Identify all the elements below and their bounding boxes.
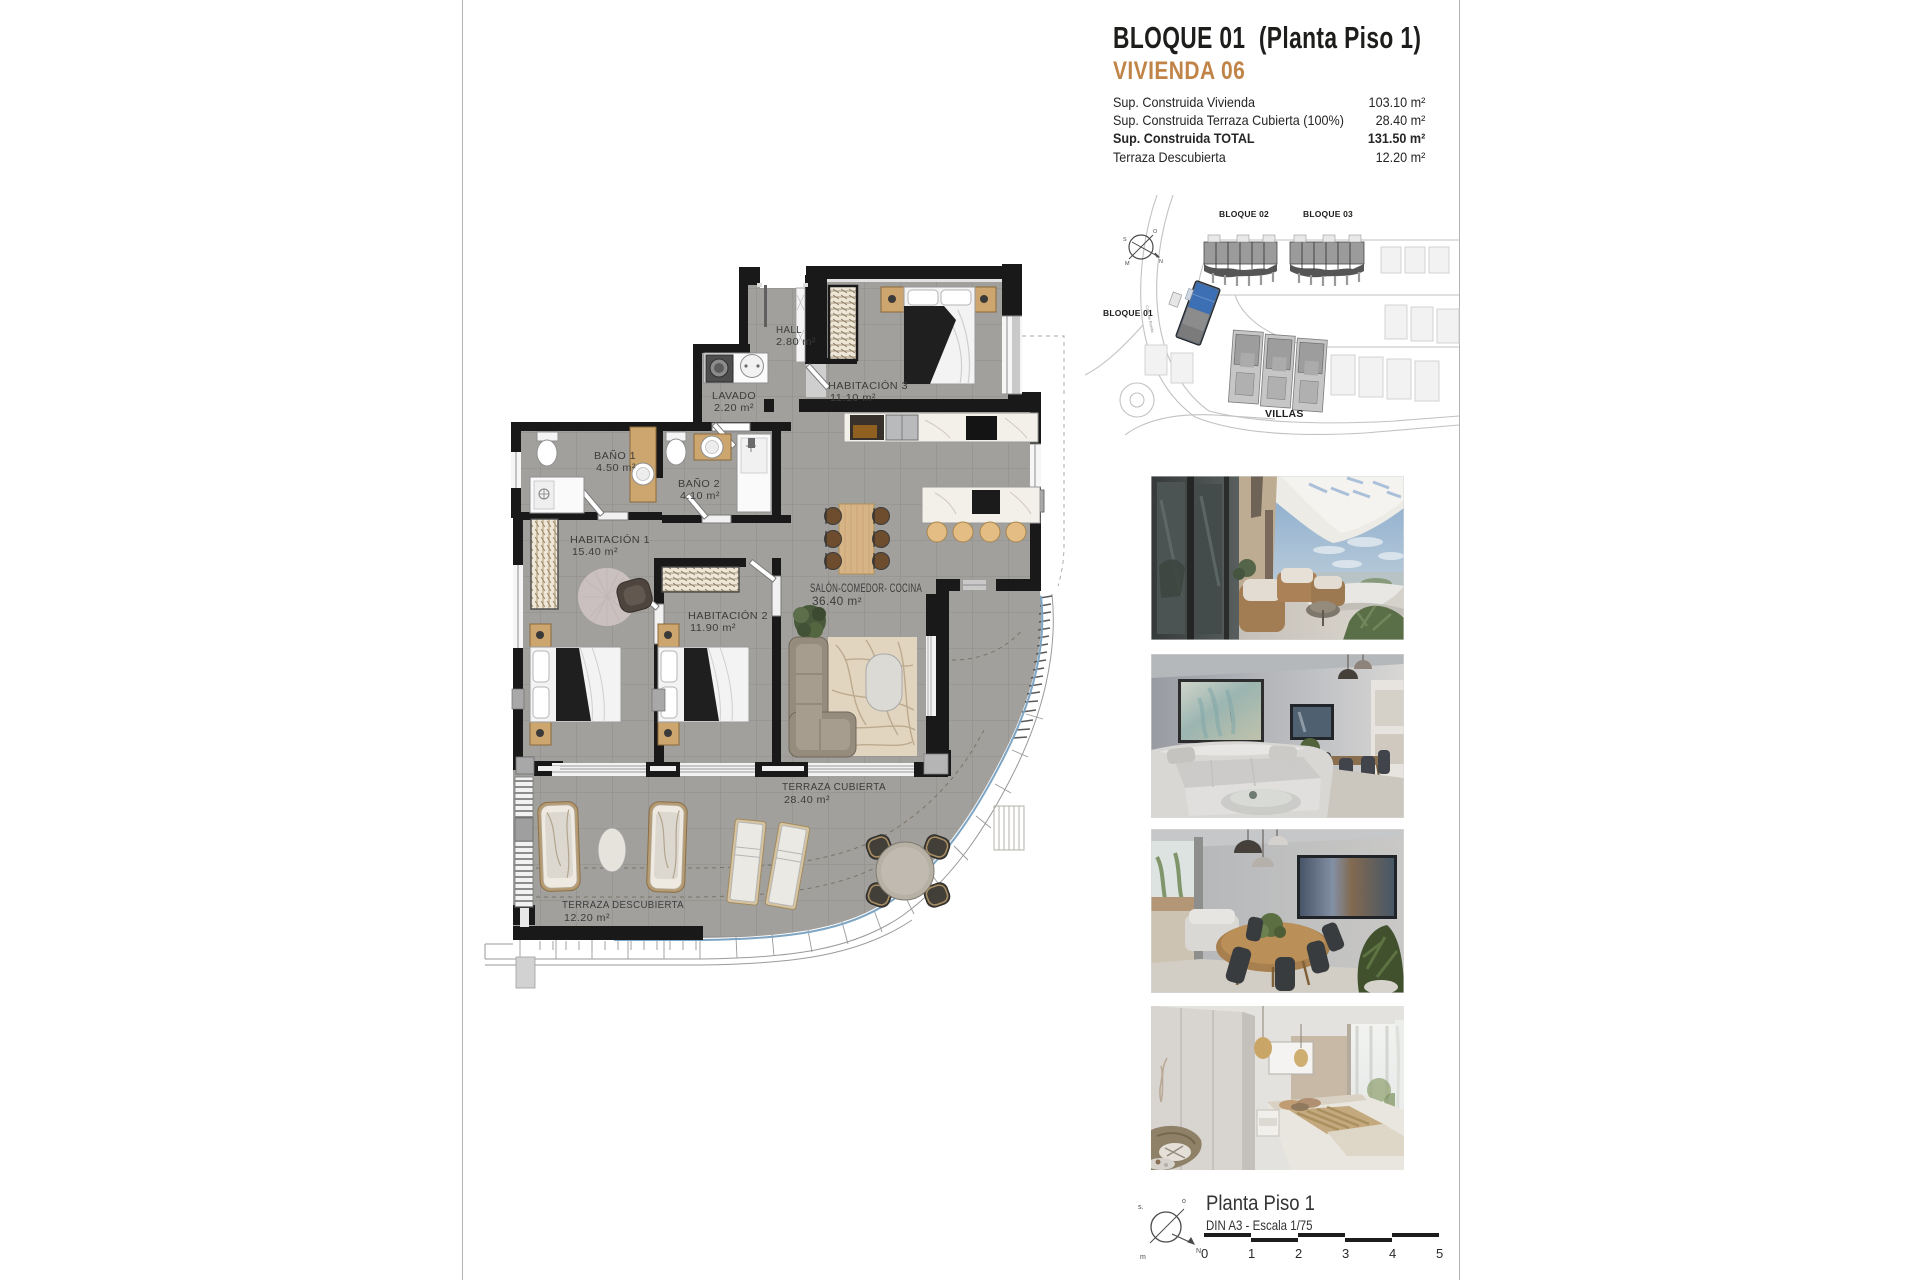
svg-text:BAÑO 2: BAÑO 2 [678, 477, 720, 490]
svg-text:4.10 m²: 4.10 m² [680, 490, 720, 502]
svg-text:HALL: HALL [776, 324, 802, 336]
svg-text:s.: s. [1138, 1204, 1144, 1211]
svg-text:VILLAS: VILLAS [1265, 408, 1304, 420]
svg-text:1: 1 [1248, 1246, 1255, 1261]
svg-text:11.90 m²: 11.90 m² [690, 622, 736, 634]
svg-text:BLOQUE 03: BLOQUE 03 [1303, 209, 1353, 219]
svg-text:2.80 m²: 2.80 m² [776, 336, 816, 348]
svg-text:BAÑO 1: BAÑO 1 [594, 449, 636, 462]
svg-text:5: 5 [1436, 1246, 1443, 1261]
svg-text:HABITACIÓN 1: HABITACIÓN 1 [570, 533, 650, 546]
svg-text:3: 3 [1342, 1246, 1349, 1261]
svg-text:4: 4 [1389, 1246, 1396, 1261]
svg-text:S: S [1123, 237, 1127, 243]
svg-text:O: O [1153, 229, 1158, 235]
svg-text:TERRAZA CUBIERTA: TERRAZA CUBIERTA [782, 781, 886, 793]
svg-text:HABITACIÓN 2: HABITACIÓN 2 [688, 609, 768, 622]
svg-text:HABITACIÓN 3: HABITACIÓN 3 [828, 379, 908, 392]
svg-text:M: M [1125, 261, 1130, 267]
svg-text:12.20 m²: 12.20 m² [564, 912, 610, 924]
svg-text:m: m [1140, 1254, 1146, 1261]
svg-text:0: 0 [1201, 1246, 1208, 1261]
svg-text:BLOQUE 02: BLOQUE 02 [1219, 209, 1269, 219]
svg-text:4.50 m²: 4.50 m² [596, 462, 636, 474]
svg-text:11.10 m²: 11.10 m² [830, 392, 876, 404]
svg-text:SALÓN-COMEDOR- COCINA: SALÓN-COMEDOR- COCINA [810, 582, 922, 595]
svg-text:o: o [1182, 1198, 1186, 1205]
svg-text:36.40 m²: 36.40 m² [812, 596, 862, 608]
svg-text:28.40 m²: 28.40 m² [784, 794, 830, 806]
svg-text:LAVADO: LAVADO [712, 390, 756, 402]
svg-text:15.40 m²: 15.40 m² [572, 546, 618, 558]
svg-text:2: 2 [1295, 1246, 1302, 1261]
svg-text:TERRAZA DESCUBIERTA: TERRAZA DESCUBIERTA [562, 899, 684, 911]
svg-text:2.20 m²: 2.20 m² [714, 402, 754, 414]
svg-text:Calle de Ronda: Calle de Ronda [1145, 305, 1156, 334]
svg-text:N: N [1159, 259, 1163, 265]
